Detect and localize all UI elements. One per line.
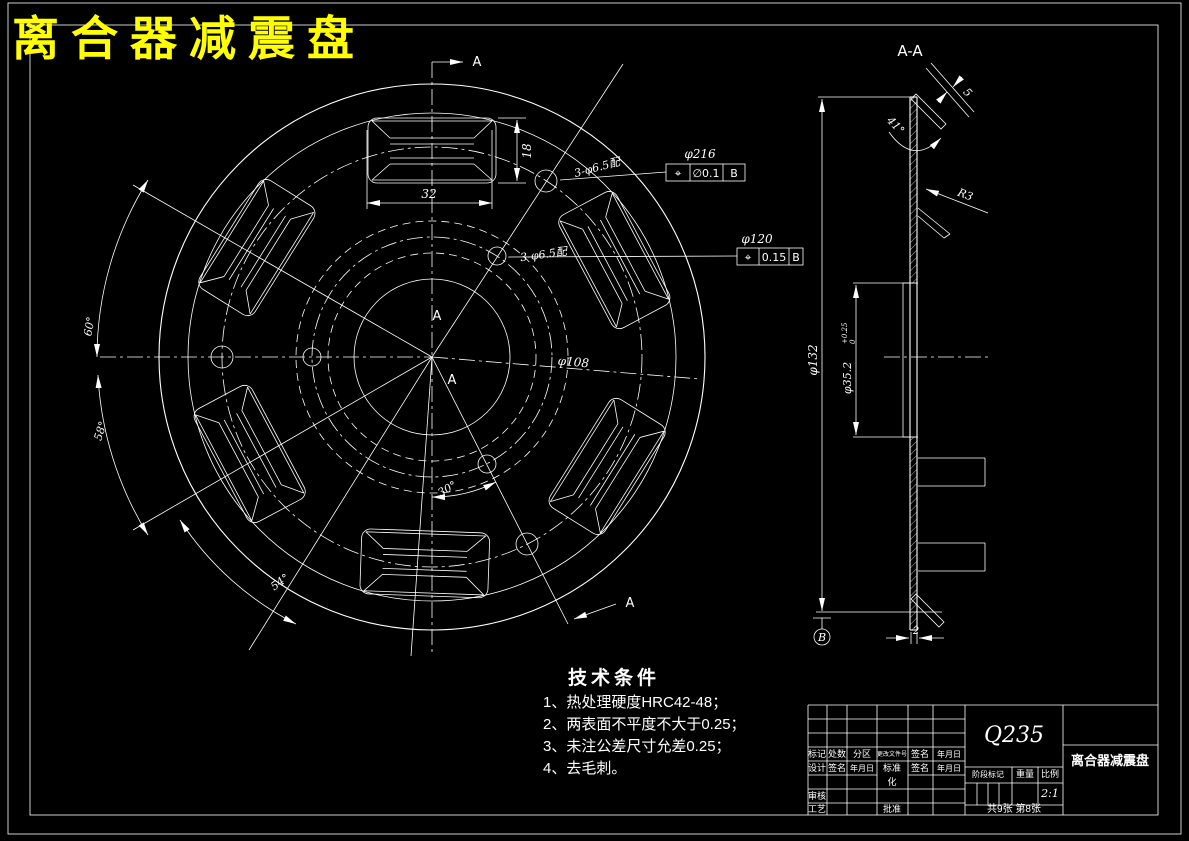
tb-biaoji: 标记 (808, 748, 826, 759)
tb-stage: 阶段标记 (972, 769, 1004, 779)
tb-hua: 化 (887, 776, 896, 787)
tech-notes-title: 技术条件 (568, 666, 660, 689)
window-flap-lower (918, 543, 985, 571)
fcf-inner-tolerance: 0.15 (762, 251, 787, 264)
dim-plate-thickness: 2 (886, 626, 944, 644)
angle-60-label: 60° (81, 316, 97, 337)
dim-phi216: φ216 (684, 147, 716, 161)
section-plate (884, 94, 992, 630)
dim-bore: φ35.2 +0.25 0 (841, 283, 918, 437)
tech-notes: 技术条件 1、热处理硬度HRC42-48； 2、两表面不平度不大于0.25； 3… (543, 666, 746, 777)
tech-note-item: 3、未注公差尺寸允差0.25； (543, 738, 731, 755)
drawing-canvas: 32 18 φ108 φ216 φ120 3-φ6.5配 3-φ6.5配 ⌖ ∅… (0, 0, 1189, 841)
title-block: 标记 处数 分区 更改文件号 签名 年月日 设计 签名 年月日 标准 化 签名 … (808, 705, 1158, 815)
slot-width-dim: 32 (421, 187, 436, 201)
datum-b-text: B (817, 631, 826, 644)
bore-dim-text: φ35.2 (841, 362, 854, 394)
section-letter-top: A (473, 55, 482, 70)
window-flap-mid (918, 458, 985, 486)
tb-nianyueri2: 年月日 (850, 763, 874, 773)
tb-qianming3: 签名 (911, 762, 929, 773)
section-cut-marks: A A A A (432, 55, 635, 619)
slot-dimensions: 32 18 (367, 118, 534, 209)
tech-note-item: 1、热处理硬度HRC42-48； (543, 694, 727, 711)
holes-note-inner: 3-φ6.5配 (519, 245, 569, 265)
sheet-info: 共9张 第8张 (987, 802, 1041, 815)
section-view: A-A (806, 42, 992, 645)
tb-qianming: 签名 (911, 748, 929, 759)
slot-height-dim: 18 (520, 143, 534, 159)
part-name: 离合器减震盘 (1071, 753, 1149, 768)
window-flap-upper (918, 208, 950, 238)
tab-thickness-text: 5 (960, 86, 974, 100)
tech-note-item: 4、去毛刺。 (543, 760, 626, 777)
dim-tab-thickness: 5 (926, 63, 975, 117)
bore-tol-upper: +0.25 (841, 322, 849, 344)
tech-note-item: 2、两表面不平度不大于0.25； (543, 716, 746, 733)
fcf-inner-datum: B (792, 251, 800, 264)
dim-phi108: φ108 (557, 354, 590, 371)
position-symbol: ⌖ (675, 166, 682, 180)
dim-fillet: R3 (926, 186, 988, 213)
datum-b: B (813, 618, 831, 645)
tb-weight: 重量 (1016, 768, 1034, 779)
dim-phi132-text: φ132 (806, 344, 820, 375)
tb-fenqu: 分区 (853, 749, 871, 759)
scale-value: 2:1 (1040, 787, 1059, 800)
title-block-design-row: 设计 签名 年月日 标准 化 签名 年月日 (808, 762, 961, 787)
main-view: 32 18 φ108 φ216 φ120 3-φ6.5配 3-φ6.5配 ⌖ ∅… (81, 55, 803, 656)
dim-phi120: φ120 (741, 232, 773, 246)
center-lines (100, 62, 700, 656)
tb-qianming2: 签名 (828, 762, 846, 773)
cad-drawing-sheet: 离合器减震盘 (0, 0, 1189, 841)
tb-chushu: 处数 (828, 748, 846, 759)
material-label: Q235 (984, 723, 1044, 748)
tb-nianyueri: 年月日 (937, 749, 961, 759)
section-view-label: A-A (897, 42, 923, 60)
tb-pizhun: 批准 (883, 803, 901, 814)
fcf-outer-tolerance: ∅0.1 (692, 167, 719, 180)
bend-angle-text: 41° (883, 113, 907, 137)
position-symbol: ⌖ (745, 250, 752, 264)
tb-biaozhun: 标准 (883, 762, 901, 773)
plate-thickness-text: 2 (912, 626, 919, 637)
drawing-title: 离合器减震盘 (12, 0, 366, 69)
dim-phi132: φ132 (806, 97, 942, 612)
bore-tol-lower: 0 (849, 339, 857, 344)
tb-gongyi: 工艺 (808, 804, 826, 814)
section-letter-mid-upper: A (433, 309, 442, 324)
section-letter-mid-lower: A (448, 373, 457, 388)
section-letter-bottom: A (626, 596, 635, 611)
angle-54-label: 54° (268, 571, 291, 593)
tb-shenhe: 审核 (808, 790, 826, 801)
tb-sheji: 设计 (808, 762, 826, 773)
tb-nianyueri3: 年月日 (937, 763, 961, 773)
angle-30-label: 30° (436, 478, 459, 499)
rivet-holes (211, 170, 557, 555)
fcf-outer-datum: B (730, 167, 738, 180)
title-block-header-row: 标记 处数 分区 更改文件号 签名 年月日 (808, 748, 961, 759)
tb-genggai: 更改文件号 (877, 750, 907, 758)
fillet-text: R3 (955, 186, 975, 204)
tb-scale: 比例 (1041, 768, 1059, 779)
angle-dimensions: 60° 58° 54° 30° (81, 180, 496, 624)
